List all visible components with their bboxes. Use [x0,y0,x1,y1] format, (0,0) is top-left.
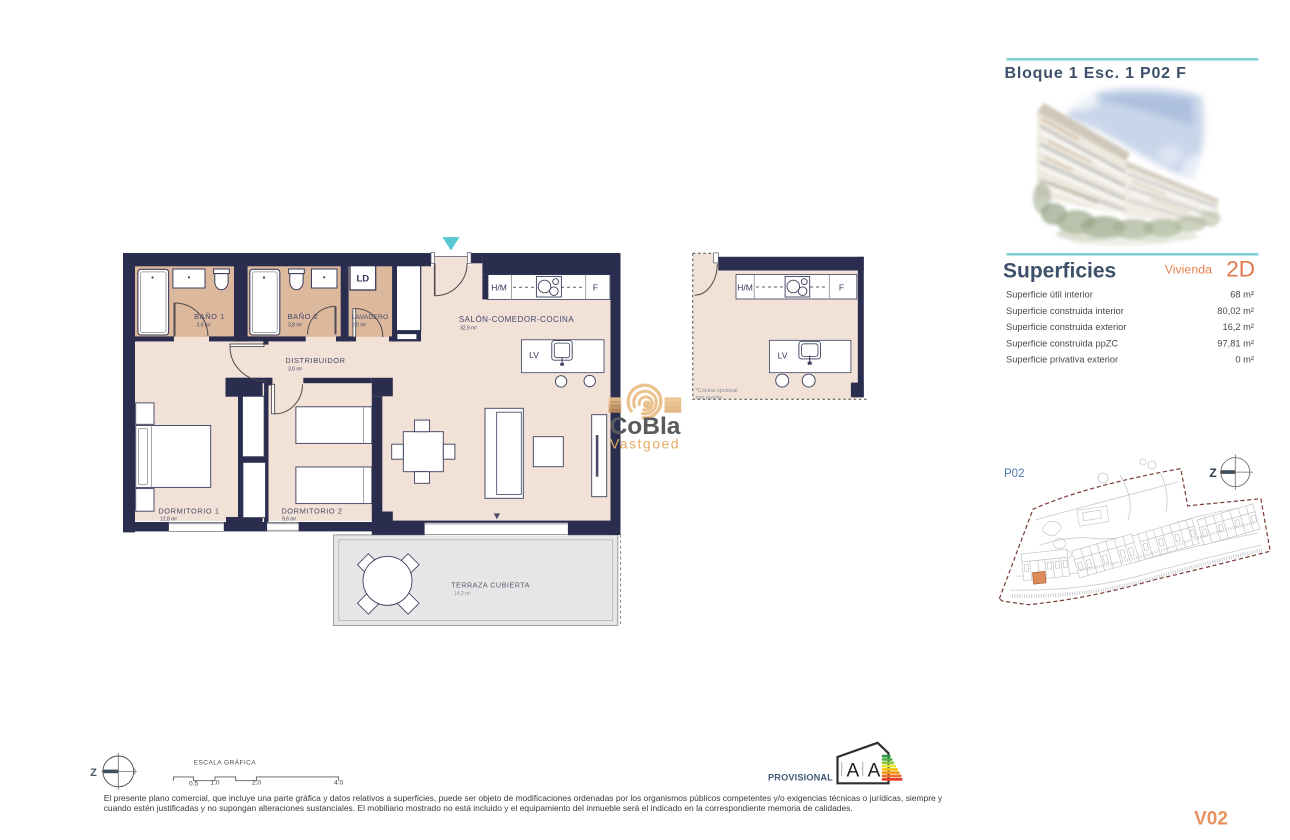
svg-text:A: A [846,761,859,782]
svg-text:A: A [868,761,881,782]
svg-text:Bloque 1 Esc. 1 P02 F: Bloque 1 Esc. 1 P02 F [1005,65,1187,82]
svg-text:DISTRIBUIDOR: DISTRIBUIDOR [285,356,345,365]
svg-text:SALÓN-COMEDOR-COCINA: SALÓN-COMEDOR-COCINA [459,315,575,324]
svg-text:Superficie construida exterior: Superficie construida exterior [1006,322,1126,332]
svg-text:H/M: H/M [491,283,507,293]
svg-text:0 m²: 0 m² [1235,355,1254,365]
svg-text:32,9 m²: 32,9 m² [460,326,477,332]
svg-text:Z: Z [90,767,97,779]
svg-text:Superficie construida interior: Superficie construida interior [1006,306,1124,316]
svg-text:LV: LV [778,351,788,361]
svg-text:Z: Z [1209,466,1216,480]
svg-text:V02: V02 [1194,809,1228,830]
svg-text:El presente plano comercial, q: El presente plano comercial, que incluye… [104,793,943,803]
svg-text:Superficies: Superficies [1003,260,1116,283]
svg-text:1.0: 1.0 [210,780,219,787]
svg-text:LD: LD [356,274,369,285]
svg-text:P02: P02 [1004,468,1024,480]
svg-text:*Cocina opcional: *Cocina opcional [696,388,738,394]
svg-text:2.0: 2.0 [252,780,261,787]
svg-text:BAÑO 1: BAÑO 1 [194,312,225,321]
svg-text:14,2 m²: 14,2 m² [454,591,471,597]
svg-text:LV: LV [529,350,539,360]
svg-text:2D: 2D [1226,257,1255,282]
svg-text:Vivienda: Vivienda [1165,263,1212,277]
svg-text:80,02 m²: 80,02 m² [1217,306,1254,316]
svg-text:H/M: H/M [737,283,753,293]
svg-text:68 m²: 68 m² [1230,290,1254,300]
svg-text:0.5: 0.5 [189,780,198,787]
svg-text:TERRAZA CUBIERTA: TERRAZA CUBIERTA [451,581,530,590]
svg-text:2,0 m²: 2,0 m² [352,323,367,329]
svg-text:Superficie privativa exterior: Superficie privativa exterior [1006,355,1118,365]
svg-text:Vastgoed: Vastgoed [610,436,680,452]
svg-text:3,9 m²: 3,9 m² [197,323,212,329]
svg-text:F: F [839,283,844,293]
svg-text:12,8 m²: 12,8 m² [160,517,177,523]
svg-text:con puerta: con puerta [696,395,723,401]
svg-text:DORMITORIO 2: DORMITORIO 2 [281,507,342,516]
svg-text:9,6 m²: 9,6 m² [282,517,297,523]
svg-text:4.0: 4.0 [334,780,343,787]
svg-text:BAÑO 2: BAÑO 2 [288,312,319,321]
svg-text:LAVADERO: LAVADERO [352,314,389,321]
svg-text:cuando estén justificadas y no: cuando estén justificadas y no supongan … [104,803,853,813]
svg-text:F: F [593,283,598,293]
svg-text:DORMITORIO 1: DORMITORIO 1 [158,507,219,516]
svg-text:Superficie construida ppZC: Superficie construida ppZC [1006,338,1118,348]
svg-text:16,2 m²: 16,2 m² [1222,322,1254,332]
svg-text:3,0 m²: 3,0 m² [288,367,303,373]
svg-text:3,8 m²: 3,8 m² [288,323,303,329]
svg-text:97,81 m²: 97,81 m² [1217,338,1254,348]
svg-text:Superficie útil interior: Superficie útil interior [1006,290,1093,300]
svg-text:ESCALA GRÁFICA: ESCALA GRÁFICA [194,758,257,767]
svg-text:PROVISIONAL: PROVISIONAL [768,773,833,783]
